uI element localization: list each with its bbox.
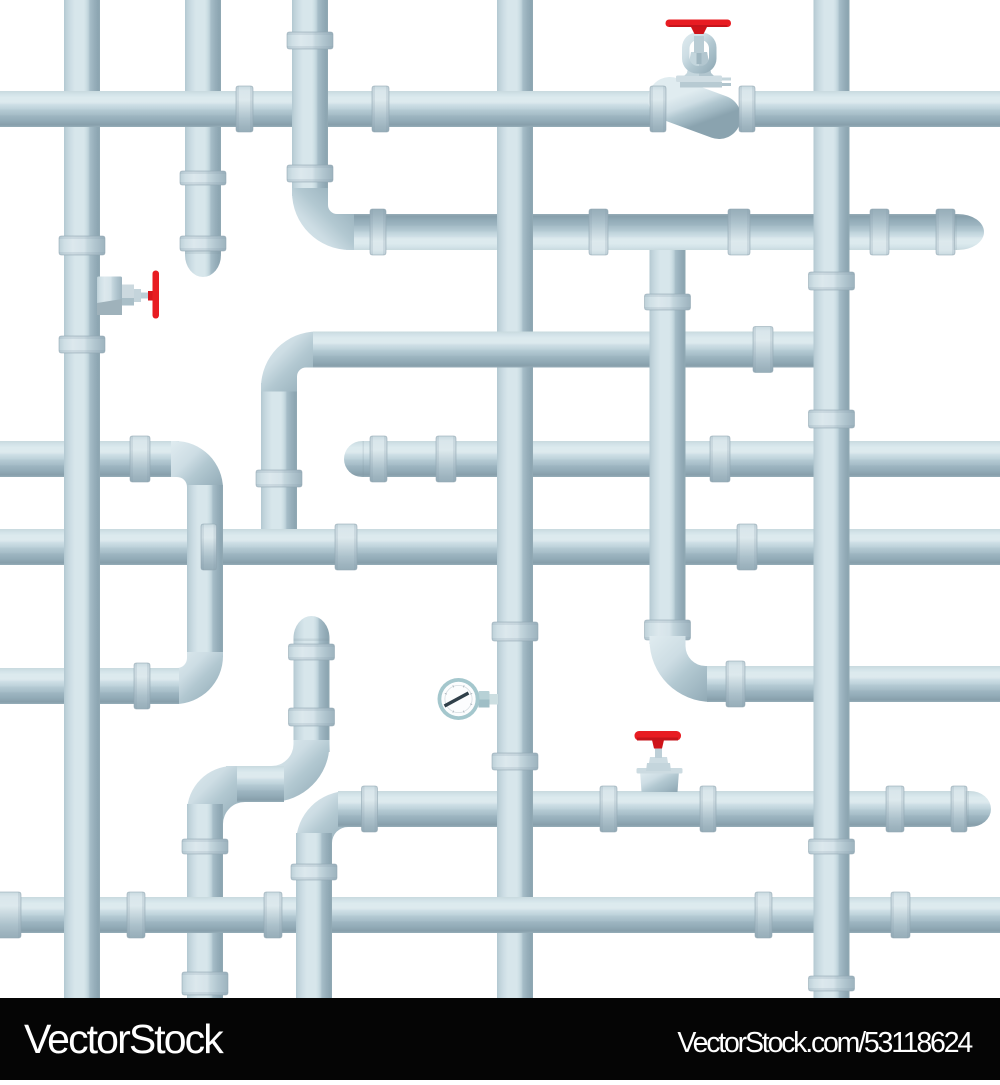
svg-text:VectorStock.com/53118624: VectorStock.com/53118624 <box>677 1027 973 1059</box>
svg-text:VectorStock: VectorStock <box>24 1016 224 1062</box>
